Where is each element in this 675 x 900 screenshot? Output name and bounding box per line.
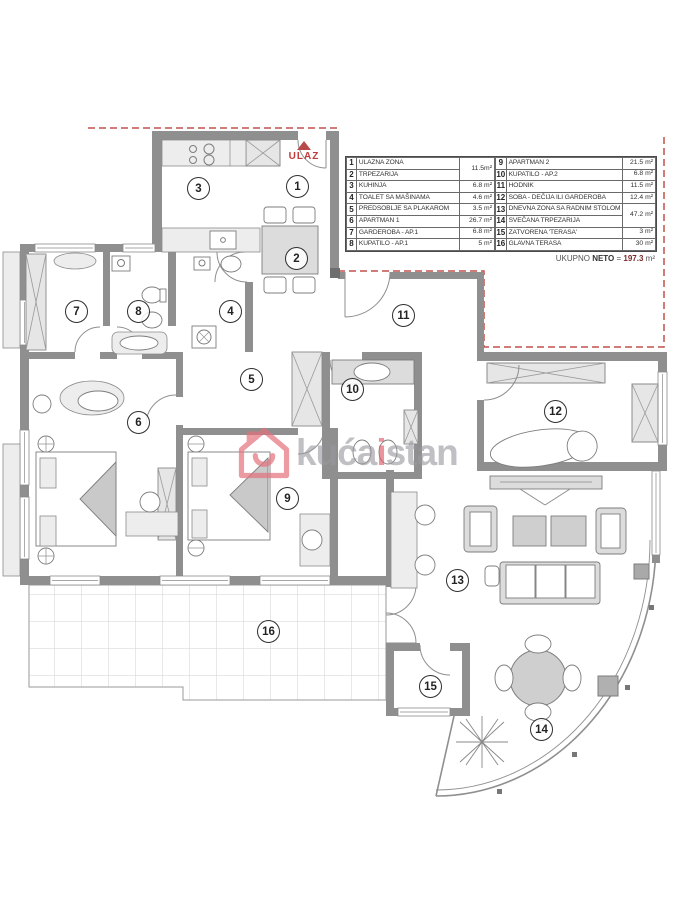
work-desk	[391, 492, 435, 588]
wardrobe-room12	[487, 363, 605, 383]
kitchen-counter	[162, 140, 260, 252]
entrance-arrow-icon	[297, 141, 311, 150]
legend-room-name: APARTMAN 2	[506, 158, 623, 170]
legend-row: 3KUHINJA6.8 m²	[347, 181, 495, 193]
room-number-badge: 4	[219, 300, 242, 323]
legend-room-number: 4	[347, 192, 357, 204]
legend-room-name: KUPATILO - AP.1	[356, 239, 459, 251]
legend-row: 16GLAVNA TERASA30 m²	[495, 239, 655, 251]
legend-room-number: 7	[347, 227, 357, 239]
room-number-badge: 1	[286, 175, 309, 198]
legend-row: 6APARTMAN 126.7 m²	[347, 215, 495, 227]
room-number-badge: 9	[276, 487, 299, 510]
legend-room-name: GLAVNA TERASA	[506, 239, 623, 251]
exterior-ledge-bottom	[3, 444, 20, 576]
desk-apartman2	[300, 514, 330, 566]
plakar-room5	[292, 352, 322, 426]
legend-room-number: 8	[347, 239, 357, 251]
legend-room-area: 26.7 m²	[460, 215, 495, 227]
terrace-16-tiles	[29, 585, 386, 700]
legend-room-number: 9	[495, 158, 506, 170]
legend-room-area: 4.6 m²	[460, 192, 495, 204]
legend-room-name: SVEČANA TRPEZARIJA	[506, 215, 623, 227]
legend-room-area: 11.5m²	[460, 158, 495, 181]
legend-room-area: 11.5 m²	[623, 181, 656, 193]
legend-room-area: 6.8 m²	[623, 169, 656, 181]
shaft-room10	[404, 410, 418, 444]
room-number-badge: 5	[240, 368, 263, 391]
tv-sideboard	[490, 476, 602, 505]
bathroom-ap2-fixtures	[332, 360, 414, 464]
legend-row: 8KUPATILO - AP.15 m²	[347, 239, 495, 251]
room-number-badge: 10	[341, 378, 364, 401]
legend-room-name: GARDEROBA - AP.1	[356, 227, 459, 239]
room-number-badge: 15	[419, 675, 442, 698]
legend-row: 11HODNIK11.5 m²	[495, 181, 655, 193]
room-number-badge: 12	[544, 400, 567, 423]
legend-room-name: KUPATILO - AP.2	[506, 169, 623, 181]
plant-icon	[456, 716, 508, 768]
armchair-apartman1	[33, 381, 124, 415]
floorplan-drawing	[0, 0, 675, 900]
entrance-marker: ULAZ	[282, 141, 326, 162]
garderoba-shelf	[54, 253, 96, 269]
bed-apartman1	[36, 436, 116, 564]
legend-room-area: 3.5 m²	[460, 204, 495, 216]
legend-room-area: 6.8 m²	[460, 227, 495, 239]
legend-table-left: 1ULAZNA ZONA11.5m²2TRPEZARIJA3KUHINJA6.8…	[346, 157, 495, 251]
round-table	[495, 635, 581, 721]
legend-room-number: 16	[495, 239, 506, 251]
legend-room-name: SOBA - DEČIJA ILI GARDEROBA	[506, 192, 623, 204]
room-number-badge: 14	[530, 718, 553, 741]
legend-row: 10KUPATILO - AP.26.8 m²	[495, 169, 655, 181]
legend-row: 12SOBA - DEČIJA ILI GARDEROBA12.4 m²	[495, 192, 655, 204]
bed-apartman2	[188, 436, 270, 556]
closet-room12	[632, 384, 658, 442]
room-number-badge: 13	[446, 569, 469, 592]
wardrobe-room7	[26, 254, 46, 350]
terrace-planter	[598, 676, 618, 696]
sofa-set	[464, 506, 649, 604]
room-number-badge: 7	[65, 300, 88, 323]
legend-room-number: 6	[347, 215, 357, 227]
entrance-label: ULAZ	[282, 151, 326, 162]
legend-row: 4TOALET SA MAŠINAMA4.6 m²	[347, 192, 495, 204]
room-number-badge: 11	[392, 304, 415, 327]
legend-room-area: 5 m²	[460, 239, 495, 251]
entry-shaft	[246, 140, 280, 166]
legend-room-number: 14	[495, 215, 506, 227]
legend-room-number: 12	[495, 192, 506, 204]
legend-room-number: 2	[347, 169, 357, 181]
room-number-badge: 16	[257, 620, 280, 643]
legend-room-name: ZATVORENA 'TERASA'	[506, 227, 623, 239]
legend-room-area: 30 m²	[623, 239, 656, 251]
legend-table-right: 9APARTMAN 221.5 m²10KUPATILO - AP.26.8 m…	[495, 157, 656, 251]
legend-room-name: DNEVNA ZONA SA RADNIM STOLOM	[506, 204, 623, 216]
legend-room-area: 47.2 m²	[623, 204, 656, 227]
room-legend: 1ULAZNA ZONA11.5m²2TRPEZARIJA3KUHINJA6.8…	[345, 156, 657, 263]
legend-row: 15ZATVORENA 'TERASA'3 m²	[495, 227, 655, 239]
legend-row: 9APARTMAN 221.5 m²	[495, 158, 655, 170]
legend-room-name: TRPEZARIJA	[356, 169, 459, 181]
legend-room-name: ULAZNA ZONA	[356, 158, 459, 170]
legend-room-name: PREDSOBLJE SA PLAKAROM	[356, 204, 459, 216]
room-number-badge: 3	[187, 177, 210, 200]
room-number-badge: 6	[127, 411, 150, 434]
legend-row: 7GARDEROBA - AP.16.8 m²	[347, 227, 495, 239]
legend-row: 13DNEVNA ZONA SA RADNIM STOLOM47.2 m²	[495, 204, 655, 216]
legend-room-name: KUHINJA	[356, 181, 459, 193]
legend-room-name: APARTMAN 1	[356, 215, 459, 227]
exterior-ledge-top	[3, 252, 20, 348]
legend-room-area: 3 m²	[623, 227, 656, 239]
legend-room-area: 12.4 m²	[623, 192, 656, 204]
room-number-badge: 2	[285, 247, 308, 270]
legend-room-number: 3	[347, 181, 357, 193]
room-number-badge: 8	[127, 300, 150, 323]
legend-room-area: 21.5 m²	[623, 158, 656, 170]
legend-room-area: 6.8 m²	[460, 181, 495, 193]
floor-plan: ULAZ kuća i stan 1ULAZNA ZONA11.5m²2TRPE…	[0, 0, 675, 900]
legend-row: 1ULAZNA ZONA11.5m²	[347, 158, 495, 170]
legend-room-number: 10	[495, 169, 506, 181]
legend-room-number: 15	[495, 227, 506, 239]
legend-room-name: HODNIK	[506, 181, 623, 193]
legend-room-number: 5	[347, 204, 357, 216]
legend-room-name: TOALET SA MAŠINAMA	[356, 192, 459, 204]
legend-room-number: 1	[347, 158, 357, 170]
legend-total: UKUPNO NETO = 197.3 m²	[345, 254, 657, 263]
legend-row: 5PREDSOBLJE SA PLAKAROM3.5 m²	[347, 204, 495, 216]
legend-room-number: 11	[495, 181, 506, 193]
legend-room-number: 13	[495, 204, 506, 216]
